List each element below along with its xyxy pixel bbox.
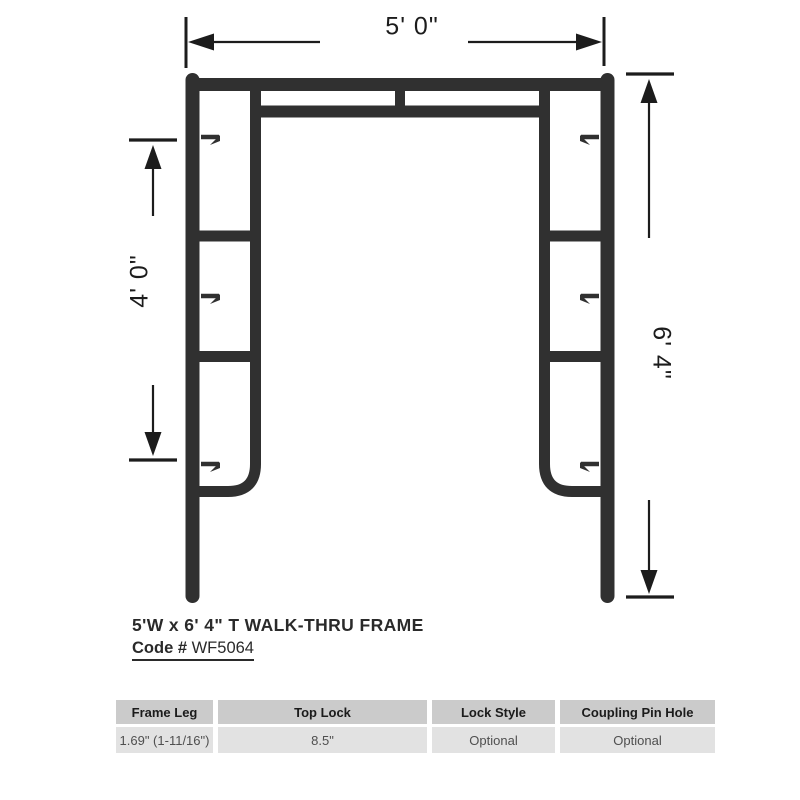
spec-header-top-lock: Top Lock — [218, 700, 427, 724]
arrowhead-left — [188, 34, 214, 51]
frame-outline — [190, 80, 610, 596]
coupling-pin — [201, 294, 220, 304]
arrowhead-up — [145, 145, 162, 169]
spec-header-coupling-pin-hole: Coupling Pin Hole — [560, 700, 715, 724]
coupling-pin — [580, 135, 599, 145]
right-height-dimension-label: 6' 4" — [647, 326, 676, 379]
frame-technical-drawing — [0, 0, 800, 800]
spec-value-top-lock: 8.5" — [218, 727, 427, 753]
walkthru-frame-spec-sheet: 5' 0" 4' 0" 6' 4" 5'W x 6' 4" T WALK-THR… — [0, 0, 800, 800]
left-height-dimension-label: 4' 0" — [126, 254, 155, 307]
arrowhead-right — [576, 34, 602, 51]
coupling-pin — [201, 135, 220, 145]
spec-table: Frame Leg Top Lock Lock Style Coupling P… — [116, 700, 715, 753]
product-code-value: WF5064 — [192, 639, 254, 657]
left-ladder-rail — [194, 84, 256, 492]
product-title: 5'W x 6' 4" T WALK-THRU FRAME — [132, 615, 424, 636]
spec-value-coupling-pin-hole: Optional — [560, 727, 715, 753]
coupling-pin — [201, 462, 220, 472]
arrowhead-up — [641, 79, 658, 103]
width-dimension-label: 5' 0" — [385, 13, 438, 42]
right-ladder-rail — [545, 84, 607, 492]
product-code-label: Code # — [132, 639, 187, 657]
arrowhead-down — [641, 570, 658, 594]
spec-value-frame-leg: 1.69" (1-11/16") — [116, 727, 213, 753]
coupling-pin — [580, 294, 599, 304]
product-code: Code # WF5064 — [132, 639, 254, 661]
spec-header-frame-leg: Frame Leg — [116, 700, 213, 724]
arrowhead-down — [145, 432, 162, 456]
spec-value-lock-style: Optional — [432, 727, 555, 753]
spec-header-lock-style: Lock Style — [432, 700, 555, 724]
coupling-pin — [580, 462, 599, 472]
